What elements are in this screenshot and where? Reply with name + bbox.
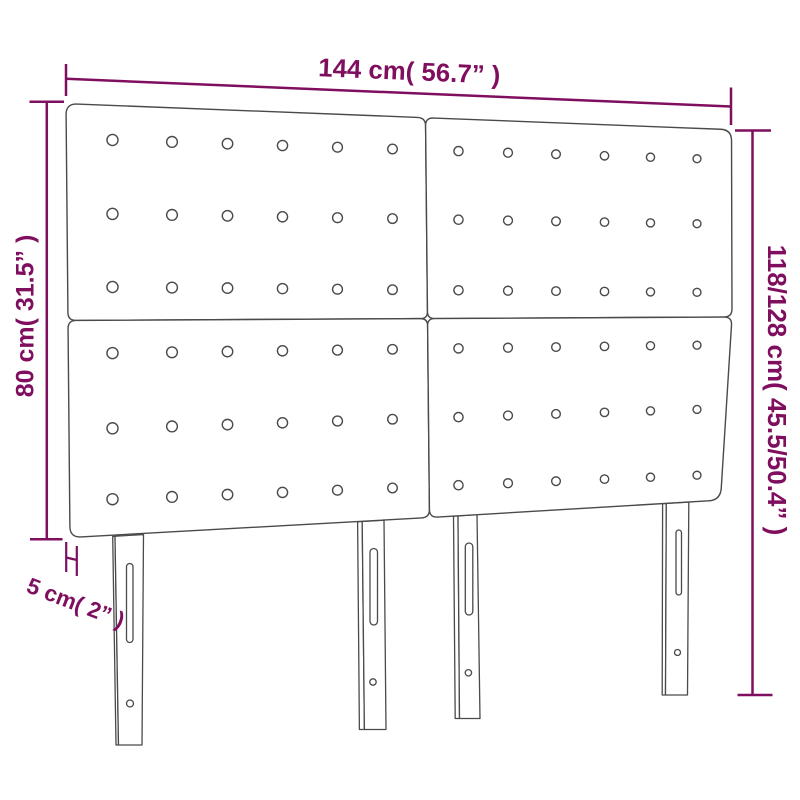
svg-text:118/128 cm( 45.5/50.4” ): 118/128 cm( 45.5/50.4” ) <box>762 245 792 536</box>
svg-text:80 cm( 31.5” ): 80 cm( 31.5” ) <box>12 235 40 398</box>
